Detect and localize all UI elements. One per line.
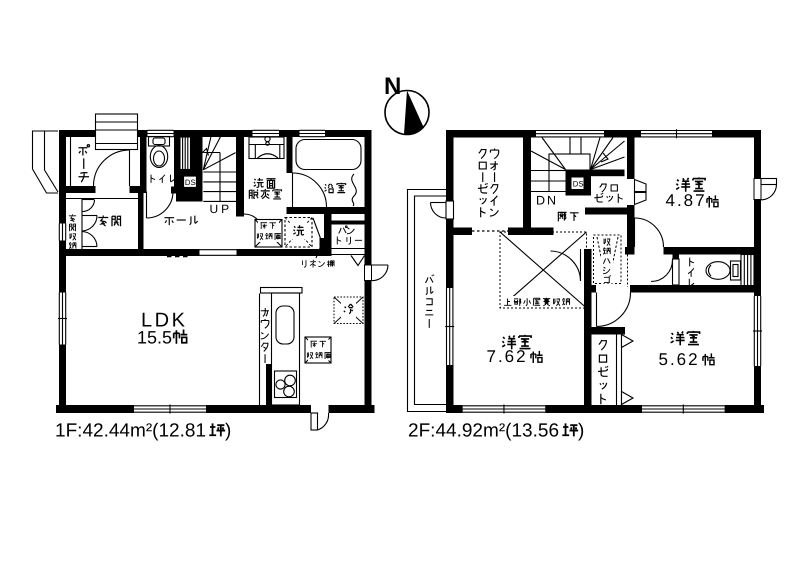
svg-text:7.62: 7.62 xyxy=(487,347,528,366)
svg-text:): ) xyxy=(225,421,231,442)
svg-text:DN: DN xyxy=(536,194,558,208)
svg-text:DS: DS xyxy=(185,178,196,187)
svg-text:): ) xyxy=(578,421,584,442)
svg-text:5.62: 5.62 xyxy=(659,350,700,369)
svg-text:1F:42.44m²(12.81: 1F:42.44m²(12.81 xyxy=(55,421,206,442)
svg-text:N: N xyxy=(384,73,401,100)
svg-text:DS: DS xyxy=(573,180,584,189)
svg-text:2F:44.92m²(13.56: 2F:44.92m²(13.56 xyxy=(408,421,559,442)
svg-text:15.5: 15.5 xyxy=(137,328,172,348)
svg-text:UP: UP xyxy=(210,202,233,216)
svg-text:4.87: 4.87 xyxy=(666,191,707,210)
